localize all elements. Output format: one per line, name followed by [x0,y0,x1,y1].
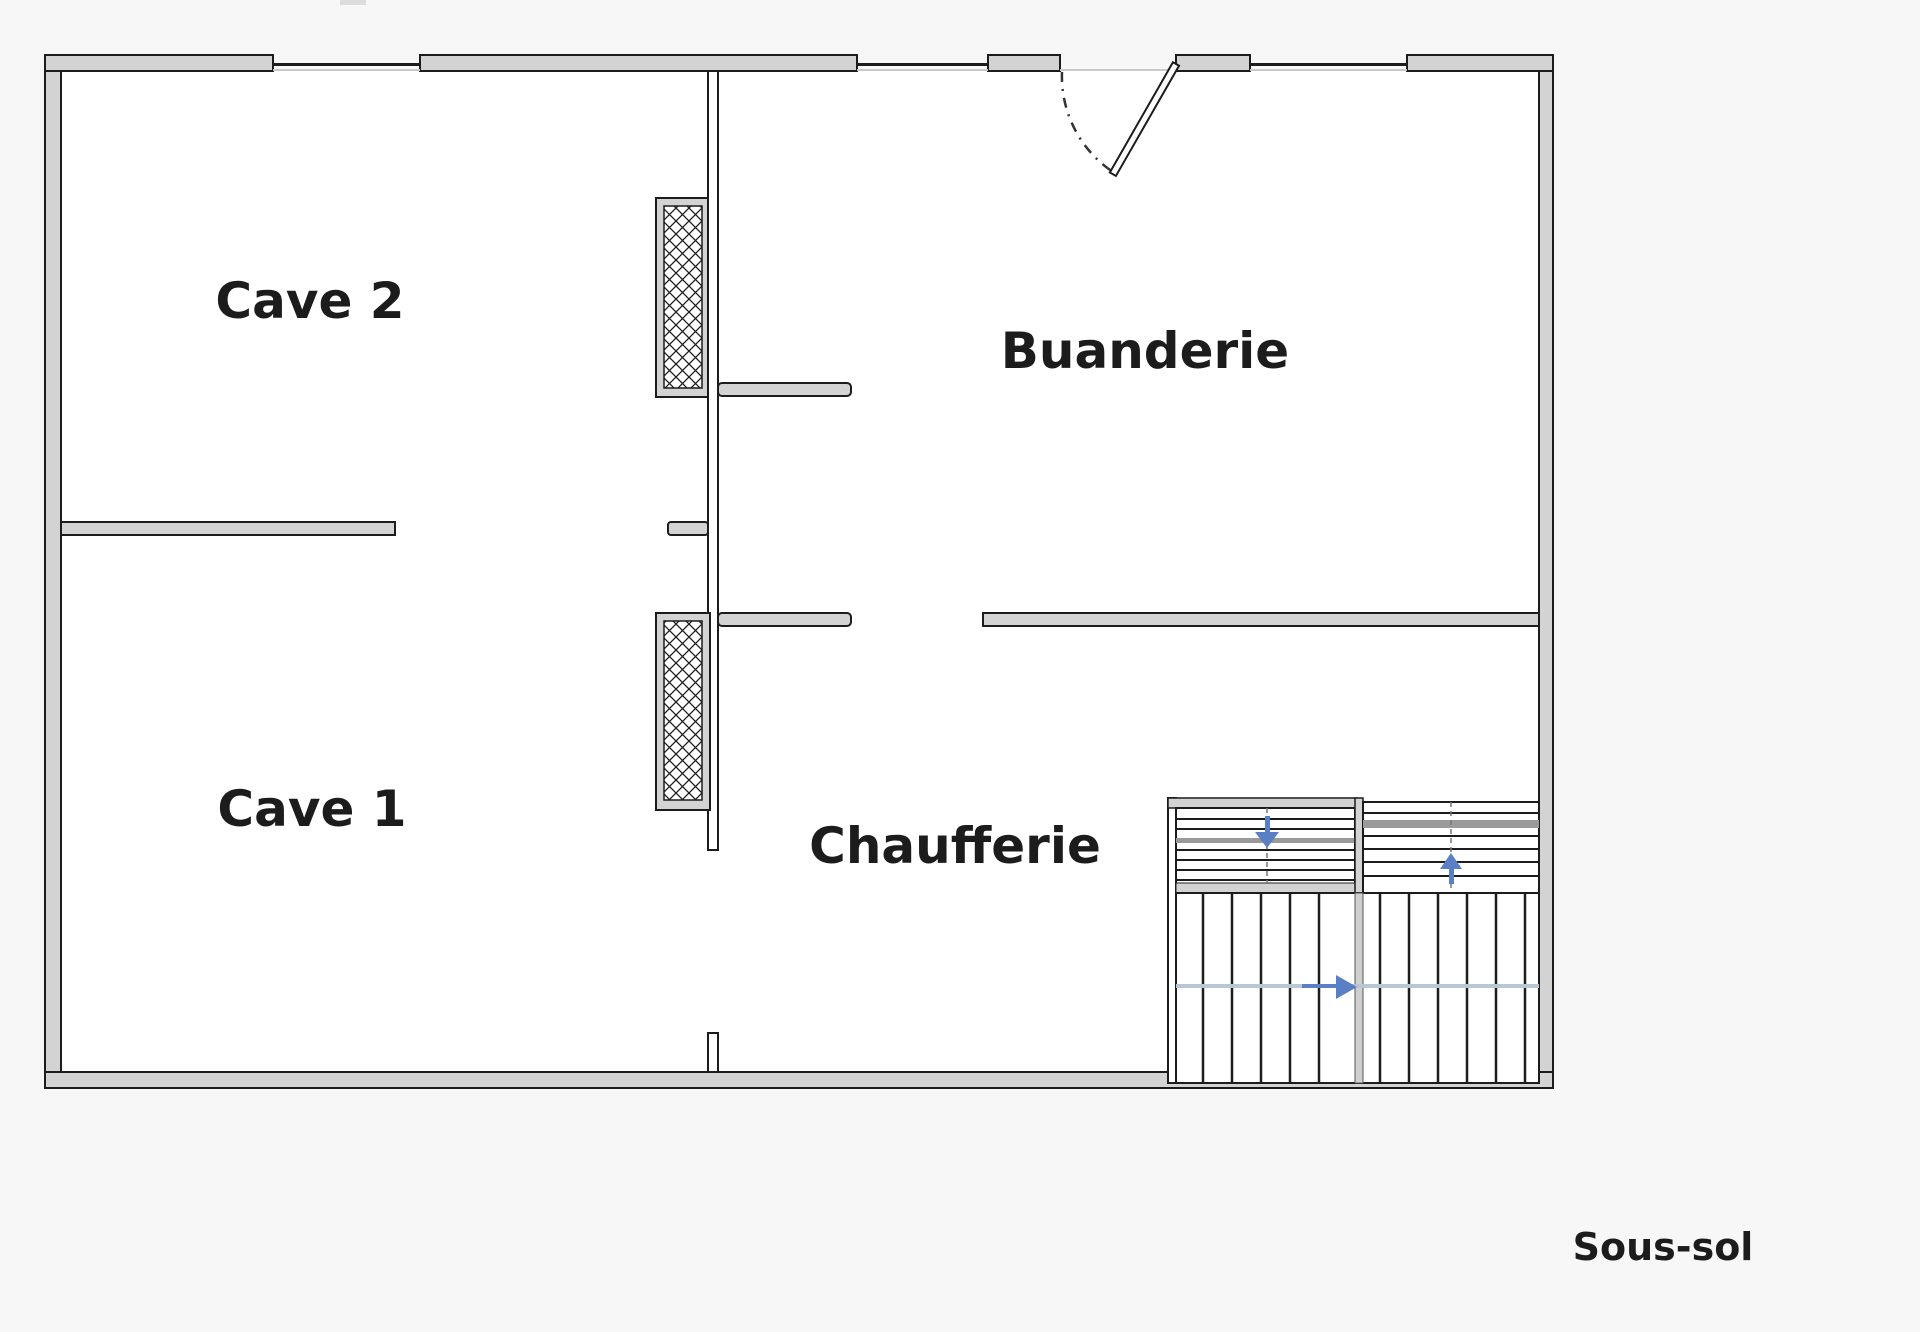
window-1-sill [273,69,420,71]
upper-left-landing [1176,883,1355,893]
stair-mid-divider [1355,798,1363,893]
basement-floor-plan: Cave 2 Cave 1 Buanderie Chaufferie Sous-… [0,0,1920,1332]
stair-top-band [1168,798,1357,808]
cave-2-label: Cave 2 [215,272,404,330]
upper-right-flight [1363,802,1539,893]
chaufferie-stub-wall [718,613,851,626]
window-1 [273,63,420,66]
shaft-lower-hatch [664,621,702,800]
window-3-sill [1250,69,1407,71]
chaufferie-label: Chaufferie [809,817,1101,875]
top-wall-segment-1 [45,55,273,71]
staircase [1168,798,1539,1083]
top-edge-fragment [340,0,366,5]
floor-plan-page: Cave 2 Cave 1 Buanderie Chaufferie Sous-… [0,0,1920,1332]
window-2 [857,63,988,66]
top-wall-segment-5 [1407,55,1553,71]
buanderie-label: Buanderie [1001,322,1289,380]
buanderie-stub-wall [718,383,851,396]
cave-1-label: Cave 1 [217,780,406,838]
lower-flight [1176,893,1539,1083]
stair-left-wall [1168,798,1176,1083]
window-2-sill [857,69,988,71]
floor-title: Sous-sol [1573,1225,1754,1269]
top-wall-segment-2 [420,55,857,71]
buanderie-chaufferie-divider [983,613,1539,626]
left-wall [45,55,61,1088]
up-arrow-stem [1449,869,1454,884]
top-wall-segment-4 [1176,55,1250,71]
central-wall-bottom-jamb [708,1033,718,1072]
upper-left-flight [1176,808,1355,893]
right-arrow-stem [1302,984,1336,988]
shaft-upper-hatch [664,206,702,388]
window-3 [1250,63,1407,66]
cave-divider-wall [61,522,395,535]
cave-divider-stub [668,522,708,535]
lower-walk-line [1176,984,1539,988]
top-wall-segment-3 [988,55,1060,71]
down-arrow-stem [1265,816,1270,833]
right-wall [1539,55,1553,1088]
door-threshold [1060,69,1176,71]
